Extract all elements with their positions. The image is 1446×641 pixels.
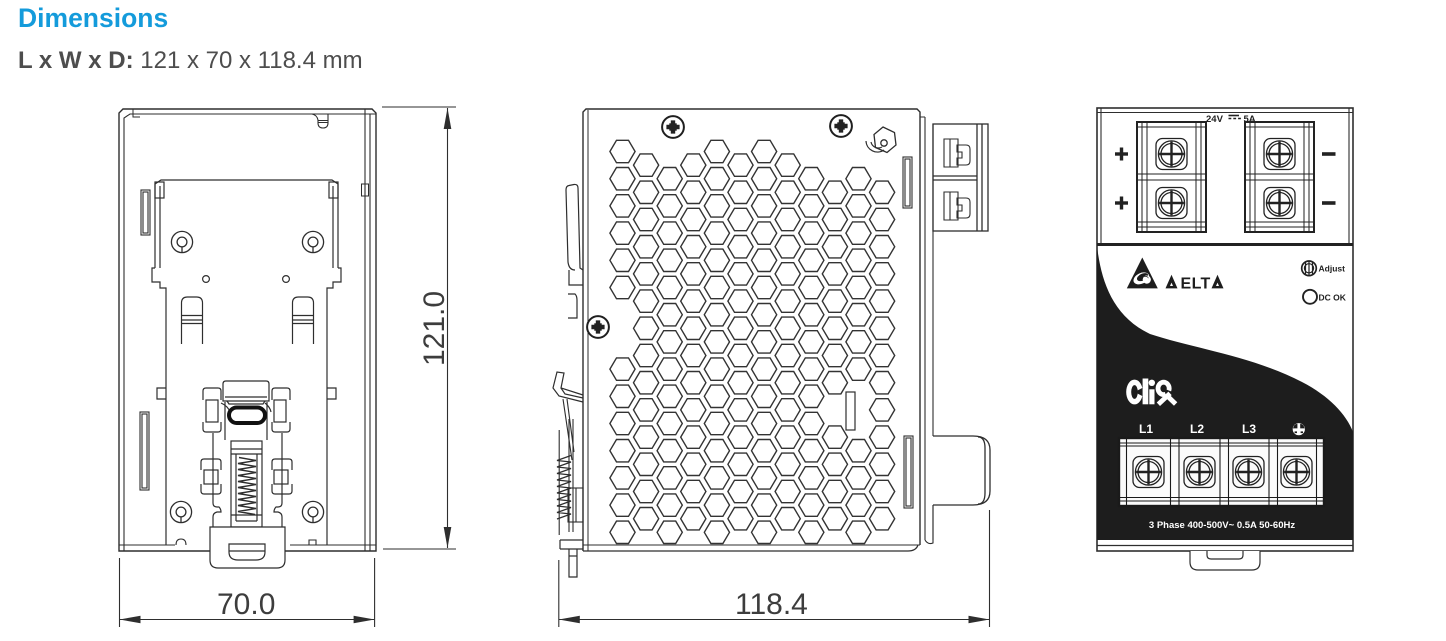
svg-text:DC OK: DC OK xyxy=(1319,292,1347,302)
svg-text:L2: L2 xyxy=(1190,422,1204,436)
svg-text:L3: L3 xyxy=(1242,422,1256,436)
svg-text:118.4: 118.4 xyxy=(735,588,808,621)
svg-text:L1: L1 xyxy=(1139,422,1153,436)
svg-text:3 Phase 400-500V~ 0.5A 50-60Hz: 3 Phase 400-500V~ 0.5A 50-60Hz xyxy=(1149,520,1295,531)
svg-text:121.0: 121.0 xyxy=(418,291,451,366)
svg-text:Adjust: Adjust xyxy=(1319,264,1346,274)
svg-text:24V: 24V xyxy=(1206,114,1224,125)
svg-text:70.0: 70.0 xyxy=(217,588,275,621)
svg-text:ELT: ELT xyxy=(1181,275,1211,292)
